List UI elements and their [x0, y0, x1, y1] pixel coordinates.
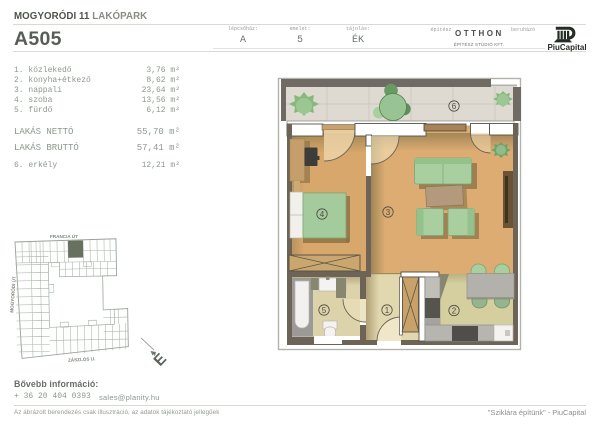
svg-text:6: 6	[452, 102, 457, 111]
svg-text:3: 3	[386, 208, 391, 217]
svg-text:2: 2	[452, 306, 457, 315]
svg-text:5: 5	[322, 306, 327, 315]
svg-text:4: 4	[320, 210, 325, 219]
svg-text:1: 1	[385, 306, 390, 315]
